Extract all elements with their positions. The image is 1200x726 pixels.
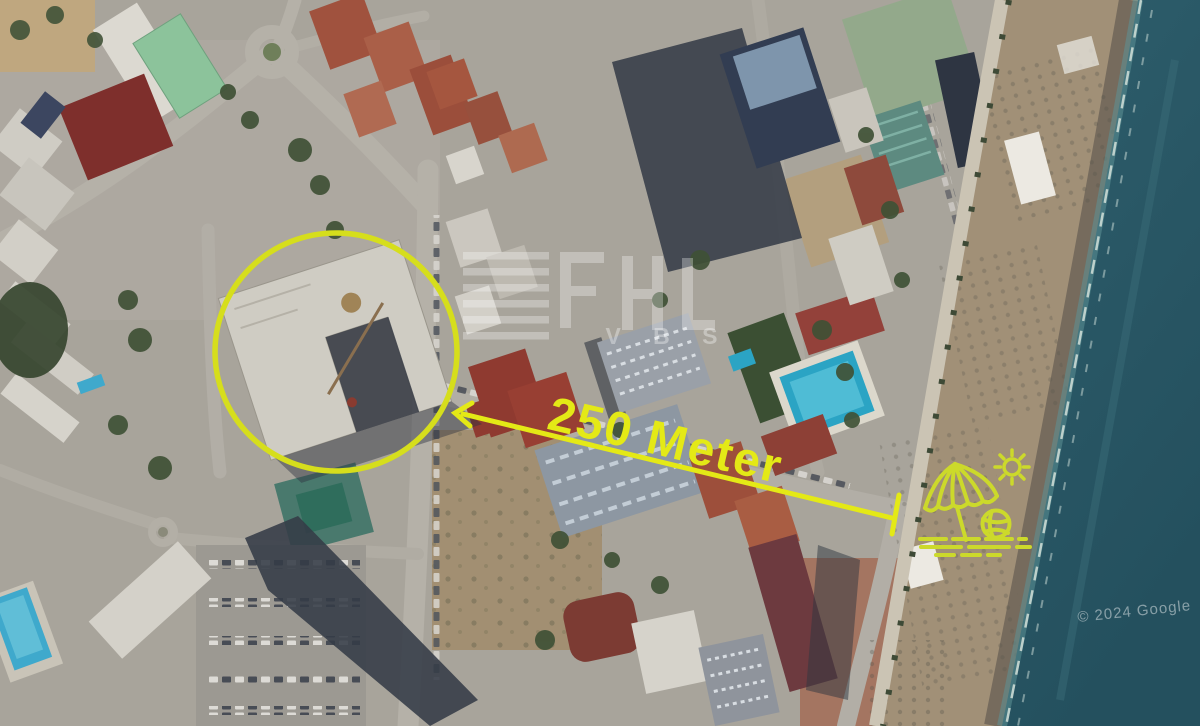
- watermark-small-text: V B S: [605, 323, 730, 349]
- map-image: V B S 250 Meter: [0, 0, 1200, 726]
